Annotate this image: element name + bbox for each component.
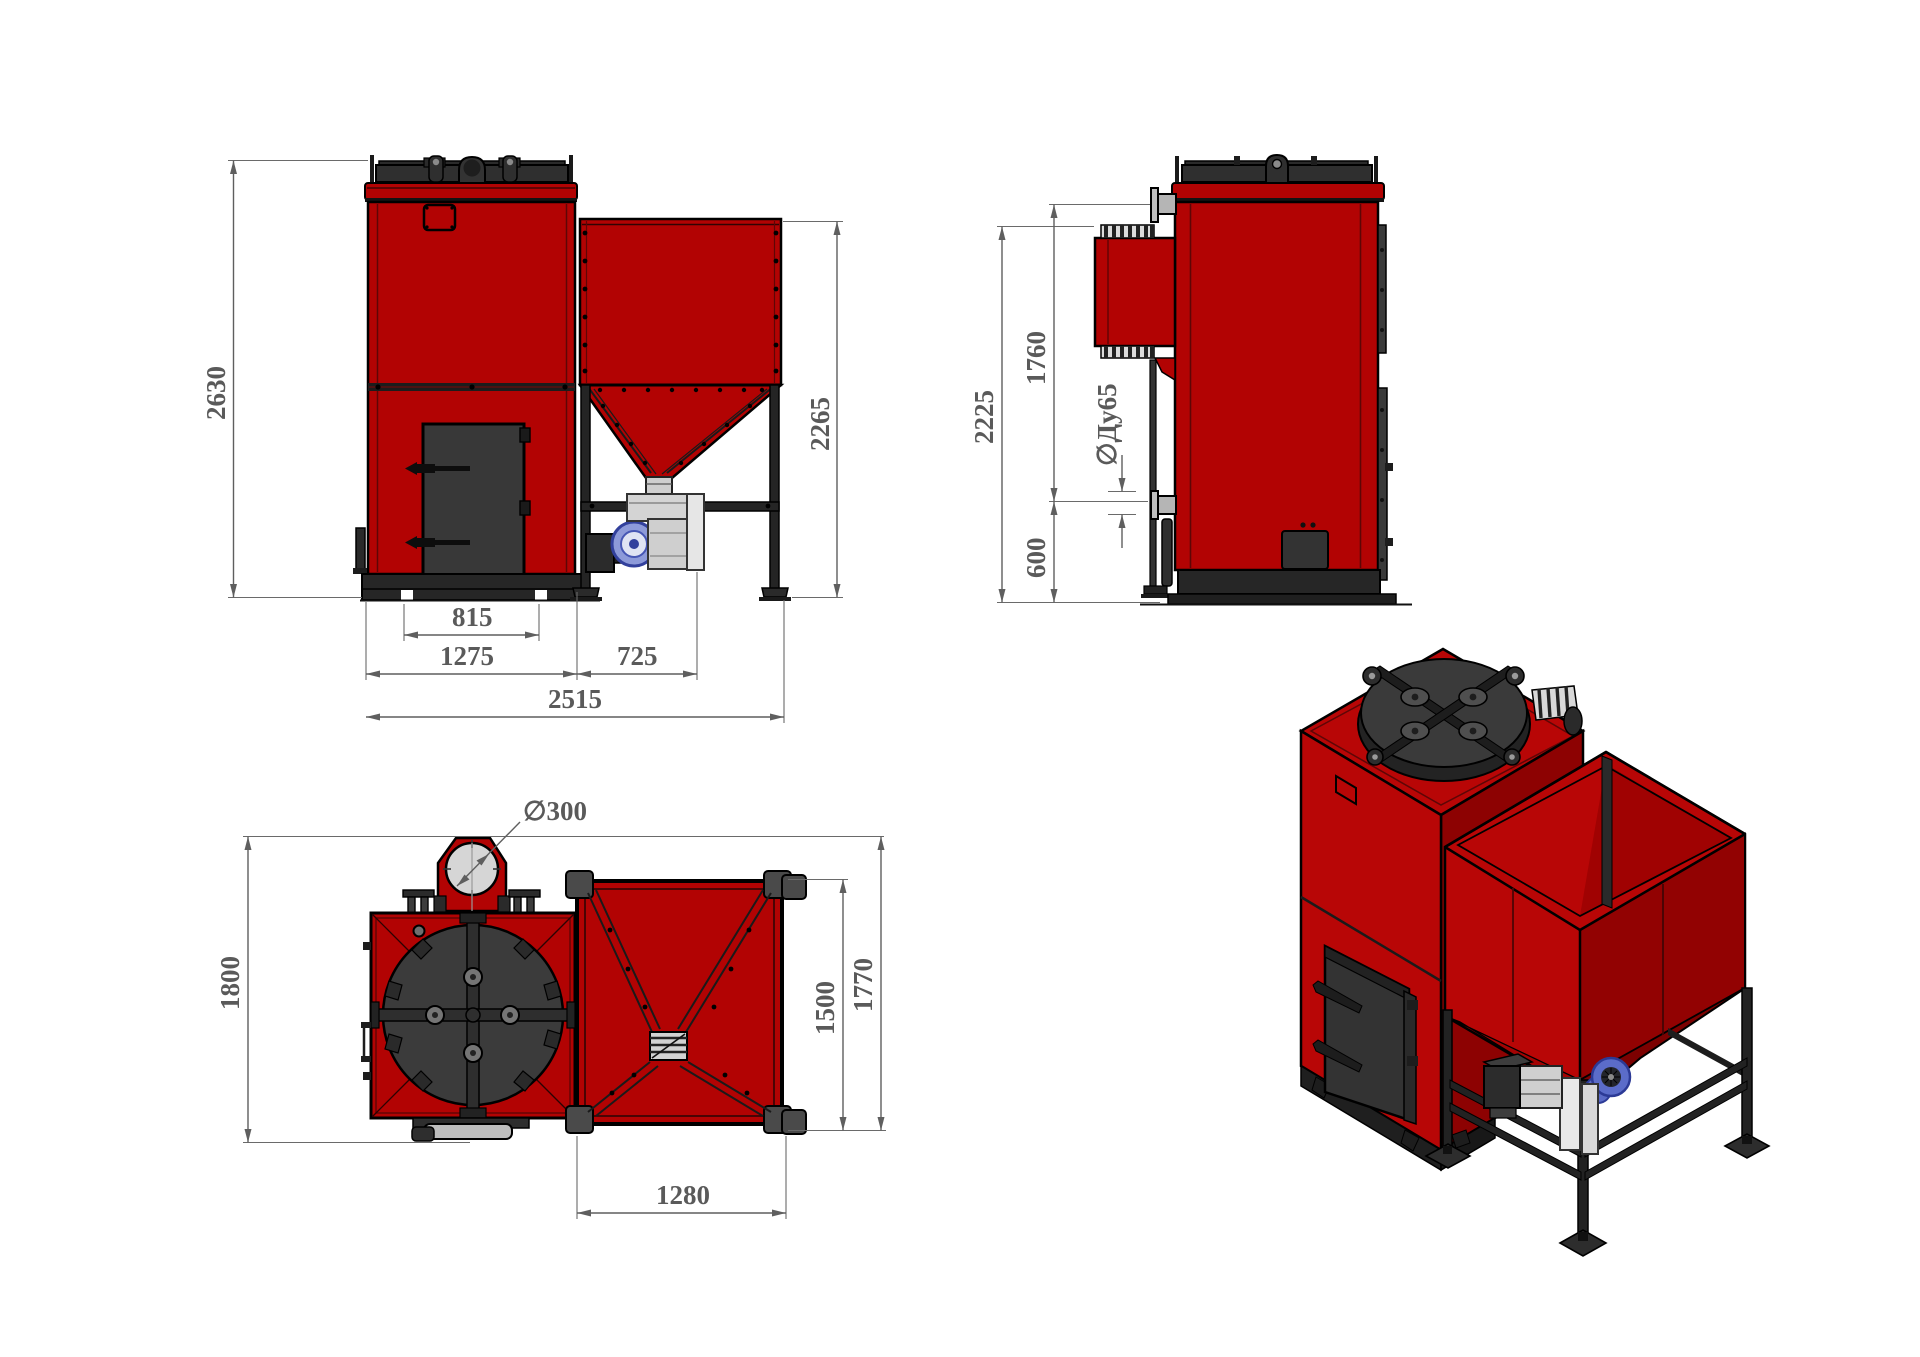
- svg-text:1770: 1770: [848, 958, 878, 1012]
- svg-text:2265: 2265: [805, 397, 835, 451]
- svg-text:1500: 1500: [810, 981, 840, 1035]
- svg-text:2630: 2630: [201, 366, 231, 420]
- svg-text:1280: 1280: [656, 1180, 710, 1210]
- svg-text:1275: 1275: [440, 641, 494, 671]
- svg-text:∅300: ∅300: [523, 796, 587, 826]
- svg-text:815: 815: [452, 602, 493, 632]
- svg-text:1760: 1760: [1021, 331, 1051, 385]
- svg-text:2225: 2225: [969, 390, 999, 444]
- svg-text:725: 725: [617, 641, 658, 671]
- svg-text:∅Ду65: ∅Ду65: [1092, 383, 1122, 466]
- svg-text:2515: 2515: [548, 684, 602, 714]
- svg-text:1800: 1800: [215, 956, 245, 1010]
- svg-text:600: 600: [1021, 538, 1051, 579]
